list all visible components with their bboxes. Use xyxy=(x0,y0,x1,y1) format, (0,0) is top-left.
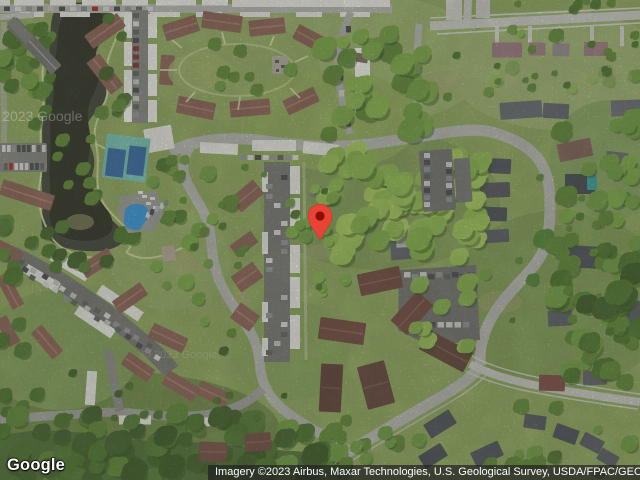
svg-text:© 2023 Google: © 2023 Google xyxy=(143,349,217,361)
svg-text:© 2023 Google: © 2023 Google xyxy=(0,108,83,124)
